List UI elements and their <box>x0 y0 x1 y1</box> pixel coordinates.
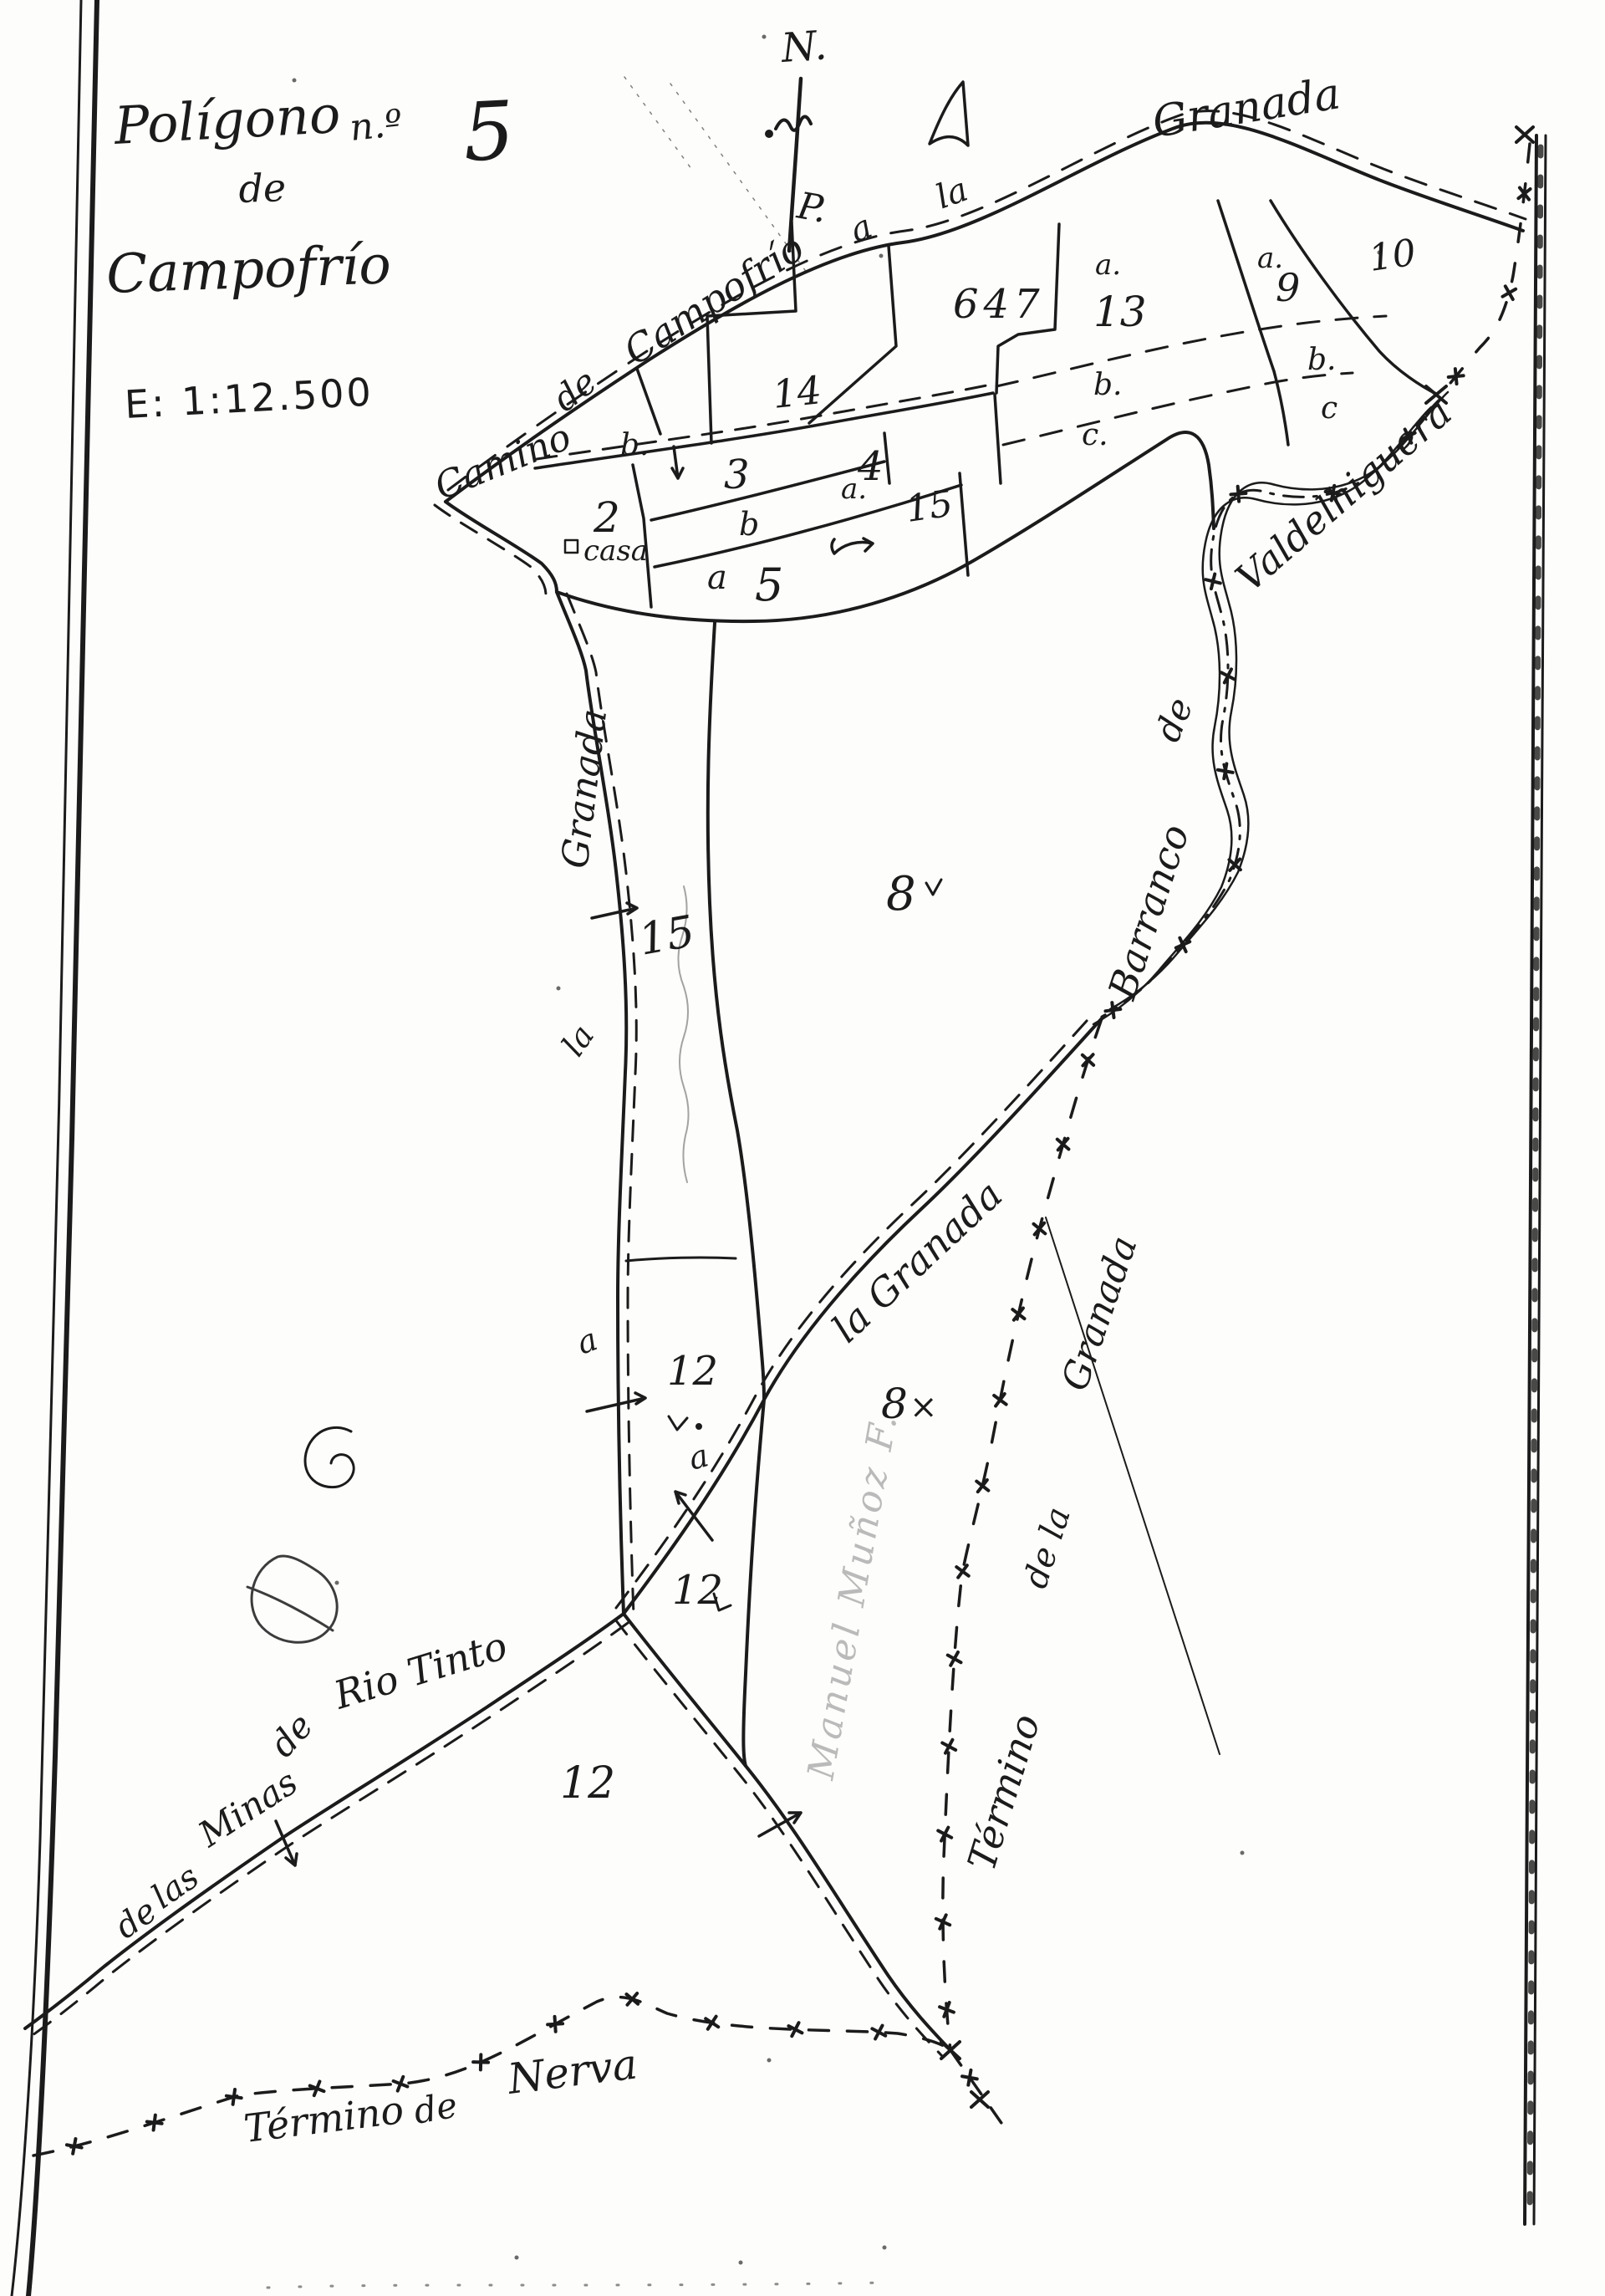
letter-b-strip: b <box>739 506 759 543</box>
scanned-map-sheet: Polígono n.º 5 de Campofrío E: 1:12.500 … <box>0 0 1605 2296</box>
letter-c-right: c <box>1321 391 1337 426</box>
survey-arrows <box>276 446 873 1865</box>
arrow-right-parcel15 <box>592 903 637 918</box>
arrow-right-parcel12 <box>587 1393 645 1411</box>
letter-a-4: a. <box>841 472 867 506</box>
compass-p-mark: P. <box>793 184 830 231</box>
letter-a-branch: a <box>685 1436 712 1477</box>
road-label-la: la <box>931 171 973 217</box>
termino-nerva-word1: Término <box>242 2087 406 2151</box>
parcel-number-14: 14 <box>771 367 824 417</box>
scan-edge-right <box>1525 135 1546 2224</box>
parcel-number-10: 10 <box>1366 232 1419 280</box>
parcel-number-5: 5 <box>755 559 783 611</box>
road-label-minas-de2: de <box>262 1705 321 1764</box>
parcel-number-12c: 12 <box>560 1758 615 1809</box>
casa-building-icon <box>565 540 578 553</box>
road-label-a: a <box>845 207 878 251</box>
letter-a-9: a. <box>1257 242 1283 275</box>
termino-line-nerva <box>33 1998 950 2156</box>
map-scale: E: 1:12.500 <box>124 369 374 427</box>
termino-granada-word3: Granada <box>1053 1231 1146 1396</box>
road-label-rio-tinto: Rio Tinto <box>328 1623 512 1718</box>
road-label-granada-west: Granada <box>553 707 615 870</box>
stream-label-de: de <box>1147 691 1201 747</box>
parcel-number-15a: 15 <box>903 482 955 531</box>
termino-line-top-right <box>1439 144 1530 395</box>
arrow-down-minas-road <box>276 1821 297 1865</box>
letter-c-13: c. <box>1082 418 1108 452</box>
ink-specks <box>293 35 1382 2265</box>
termino-line-nerva-cross-marks <box>65 1988 889 2155</box>
termino-nerva-word2: de <box>410 2084 460 2132</box>
letter-x-8: × <box>909 1388 938 1426</box>
parcel-number-8: 8 <box>886 867 916 921</box>
stream-label-valdelhiguera: Valdelhiguera <box>1227 390 1460 600</box>
road-west-granada <box>435 502 636 1615</box>
path-line-r2 <box>535 384 995 468</box>
parcel-number-3: 3 <box>724 452 750 498</box>
scratch-line-1 <box>624 77 694 172</box>
termino-granada-word1: Término <box>959 1709 1049 1875</box>
parcel-number-13: 13 <box>1093 288 1147 336</box>
scan-speckle-bottom <box>267 2283 886 2288</box>
tick-marks <box>669 880 941 1610</box>
termino-nerva-word3: Nerva <box>504 2039 639 2104</box>
compass-north-label: N. <box>779 22 828 72</box>
road-label-campofrio: Campofrío <box>616 225 813 375</box>
survey-glyph-icon <box>930 82 968 145</box>
arrow-down-parcel3 <box>672 446 683 478</box>
stream-label-barranco: Barranco <box>1099 819 1198 1006</box>
map-title-word4: Campofrío <box>105 234 392 306</box>
map-title-word1: Polígono <box>112 84 342 156</box>
road-label-la-west: la <box>554 1018 601 1063</box>
map-title-word3: de <box>237 165 287 212</box>
doodle-curl-6 <box>305 1427 354 1487</box>
termino-line-granada <box>943 1018 1102 2050</box>
road-southeast <box>615 1614 950 2056</box>
map-canvas: Polígono n.º 5 de Campofrío E: 1:12.500 … <box>0 0 1605 2296</box>
road-label-granada-top: Granada <box>1149 69 1344 148</box>
termino-tail <box>950 2050 1003 2125</box>
road-label-camino: Camino <box>429 416 577 508</box>
letter-a-13: a. <box>1095 248 1121 282</box>
arrow-double-parcel5 <box>832 538 873 554</box>
letter-b-13: b. <box>1093 368 1123 402</box>
road-label-minas-minas: Minas <box>191 1761 305 1855</box>
road-label-minas-las: las <box>145 1858 206 1916</box>
parcel-number-12a: 12 <box>667 1348 718 1395</box>
letter-b-right: b. <box>1307 343 1337 377</box>
map-title-word2: n.º <box>348 102 405 150</box>
parcel-number-12b: 12 <box>672 1567 723 1614</box>
owner-script-label: Manuel Muñoz F. <box>799 1409 906 1783</box>
doodle-p-blob <box>247 1556 337 1642</box>
map-title-number: 5 <box>461 84 517 180</box>
scan-edge-left <box>12 0 97 2296</box>
survey-sight-line <box>1046 1217 1220 1754</box>
letter-b-wedge: b. <box>620 428 650 462</box>
parcel-number-15b: 15 <box>635 906 699 966</box>
letter-a-5: a <box>707 559 727 597</box>
termino-granada-word2: de la <box>1016 1503 1078 1593</box>
road-label-de: de <box>545 360 604 419</box>
letter-a-west: a <box>572 1320 602 1361</box>
termino-line-top-right-cross-marks <box>1448 183 1535 385</box>
road-minas-rio-tinto <box>25 1614 628 2038</box>
parcel-number-647: 647 <box>953 281 1045 328</box>
casa-label: casa <box>583 534 648 568</box>
